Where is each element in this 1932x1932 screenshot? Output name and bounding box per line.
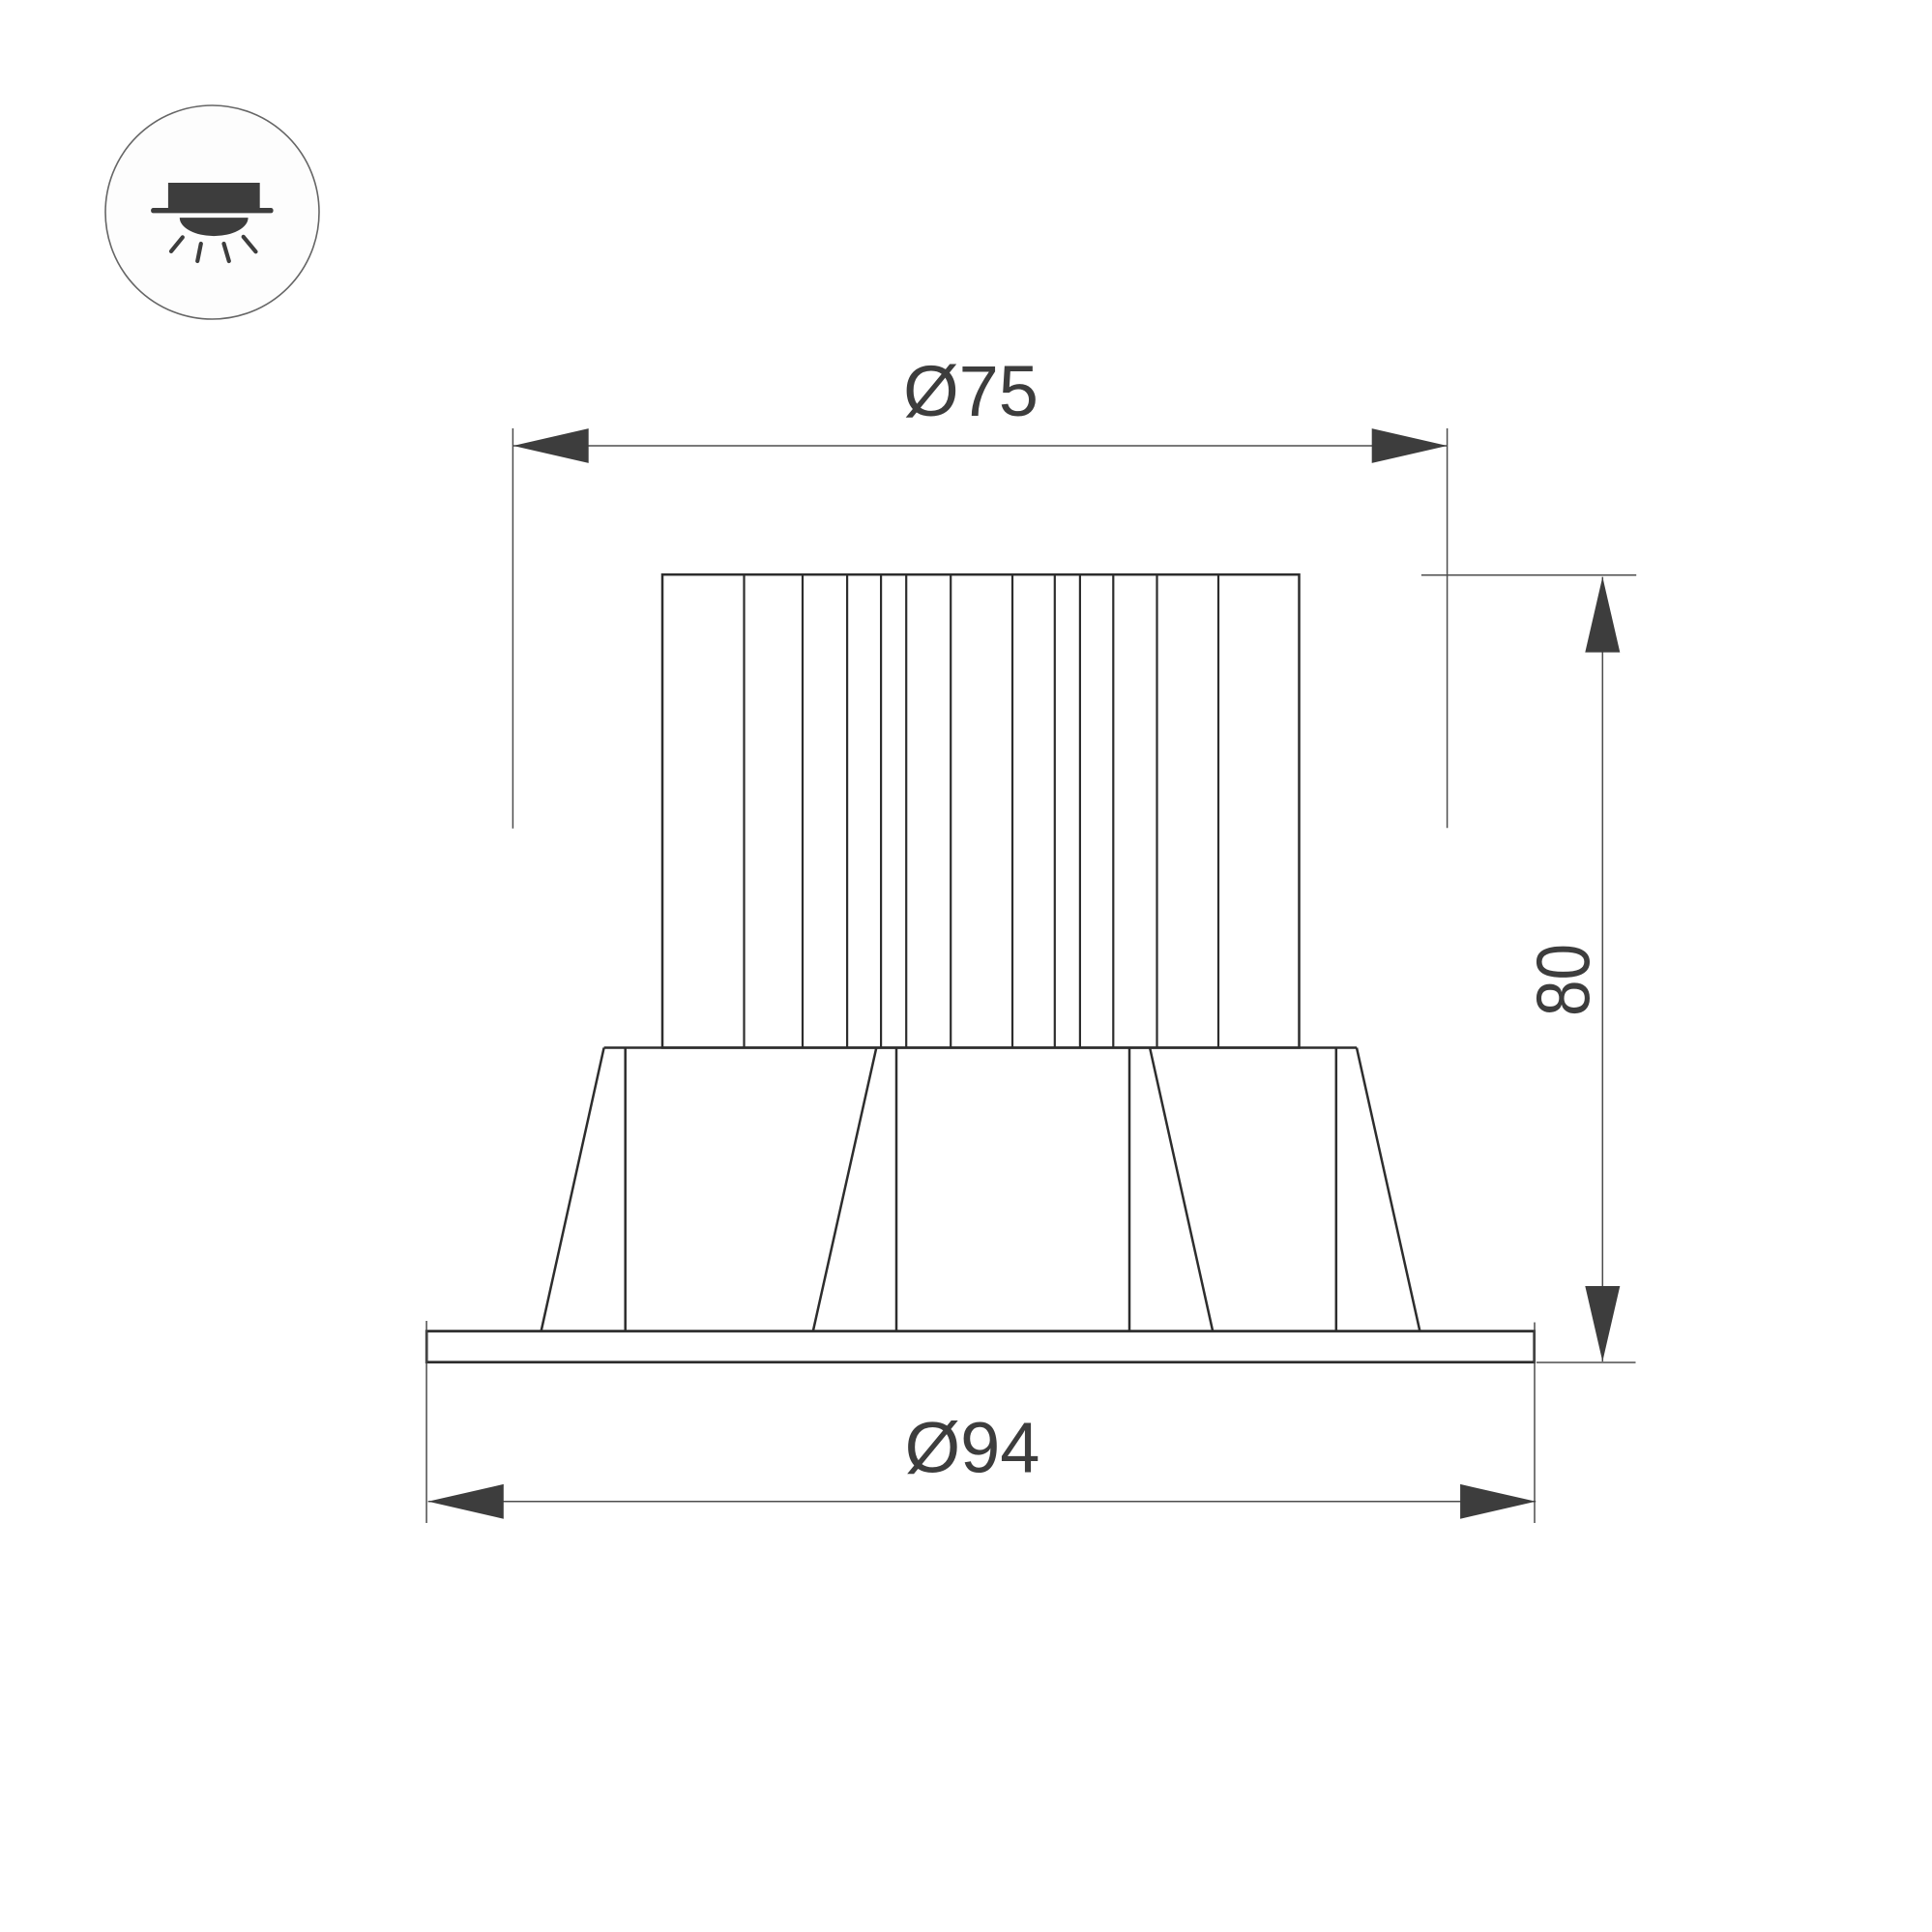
svg-text:Ø75: Ø75 [903,351,1039,431]
svg-text:80: 80 [1520,944,1605,1016]
svg-text:Ø94: Ø94 [905,1407,1040,1487]
